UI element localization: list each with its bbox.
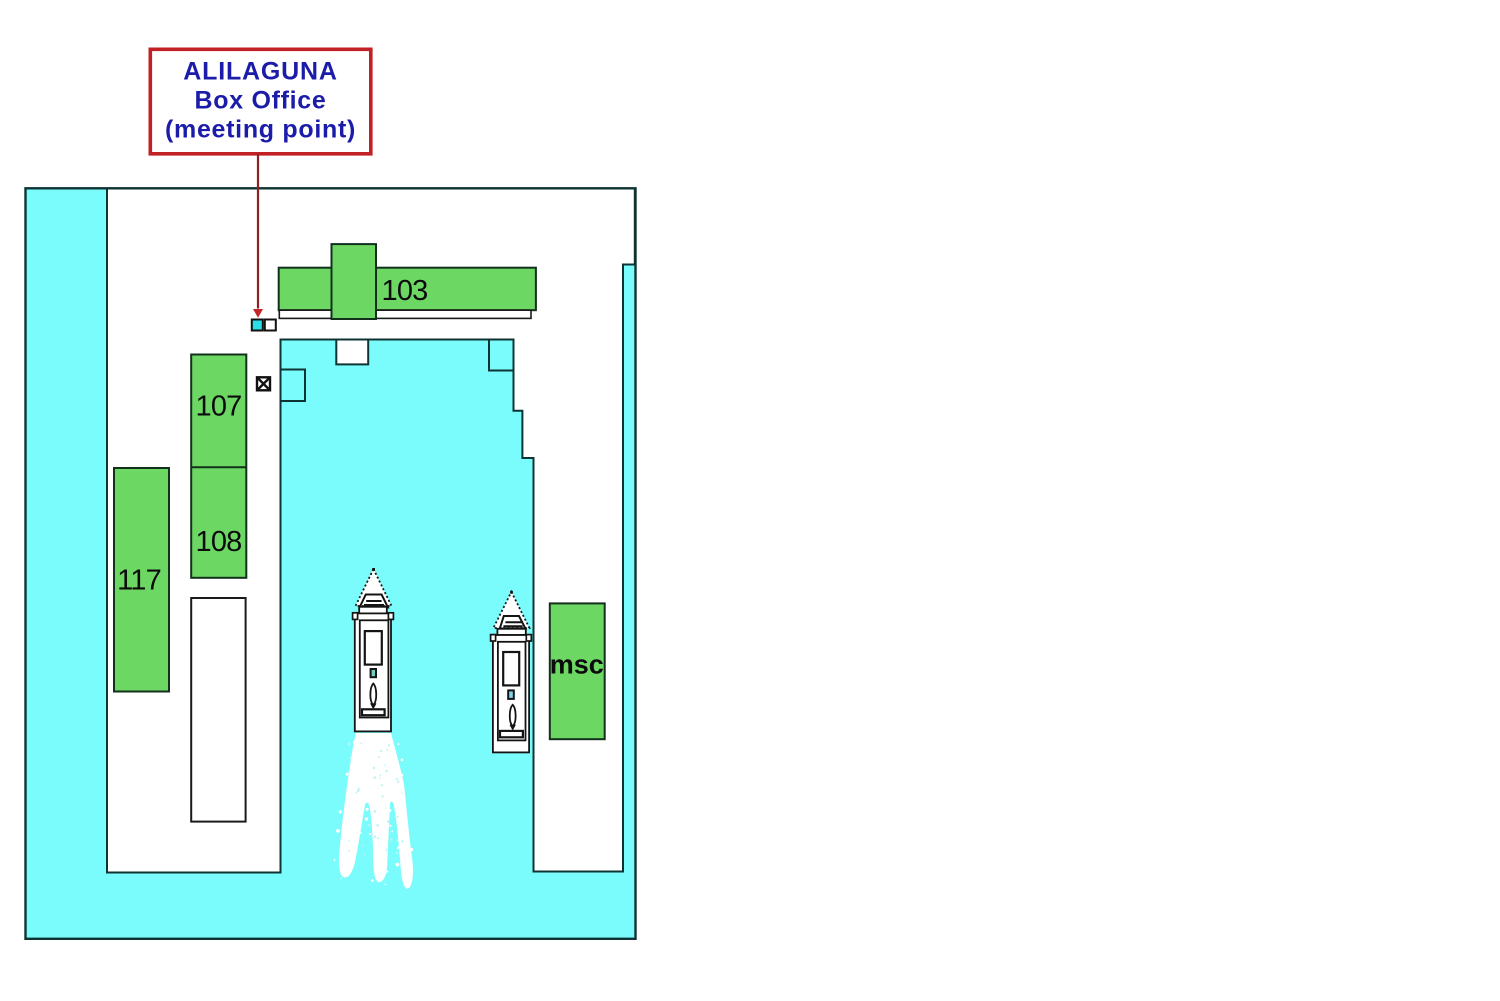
svg-text:ALILAGUNA: ALILAGUNA <box>183 58 337 86</box>
svg-text:Box Office: Box Office <box>194 87 326 115</box>
svg-text:msc: msc <box>550 650 604 680</box>
svg-text:(meeting point): (meeting point) <box>165 116 356 144</box>
svg-text:107: 107 <box>196 390 242 422</box>
svg-text:108: 108 <box>196 526 242 558</box>
svg-text:103: 103 <box>382 275 428 307</box>
svg-text:117: 117 <box>117 565 161 597</box>
